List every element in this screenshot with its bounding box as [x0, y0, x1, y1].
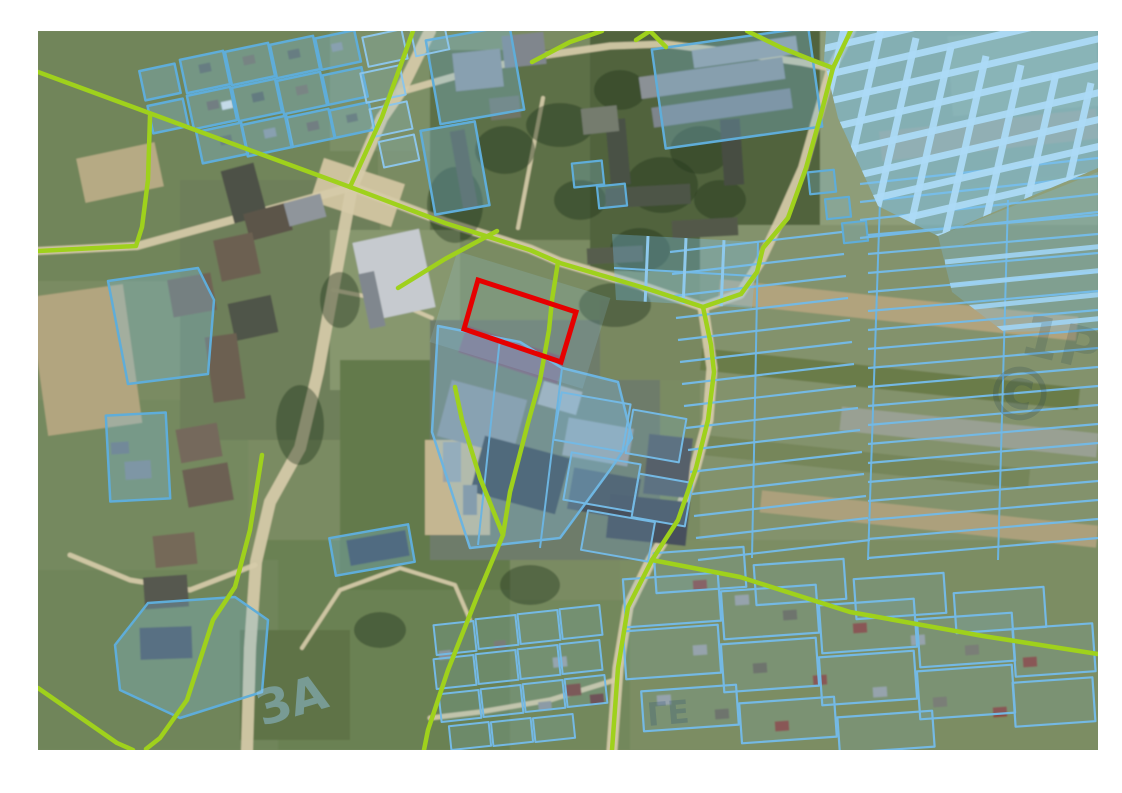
cadastral-parcel[interactable]: [523, 680, 566, 712]
cadastral-parcel[interactable]: [108, 268, 214, 384]
cadastral-parcel[interactable]: [652, 31, 822, 149]
cadastral-parcel[interactable]: [139, 64, 180, 101]
cadastral-parcel[interactable]: [449, 722, 491, 750]
cadastral-parcel[interactable]: [180, 51, 230, 93]
cadastral-parcel[interactable]: [825, 197, 851, 219]
tree-canopy: [694, 180, 746, 220]
tree-canopy: [276, 385, 324, 465]
cadastral-parcel[interactable]: [954, 587, 1047, 633]
building: [213, 232, 261, 281]
building: [175, 423, 222, 464]
cadastral-parcel[interactable]: [533, 714, 575, 742]
cadastral-parcel[interactable]: [626, 410, 687, 463]
cadastral-parcel[interactable]: [225, 43, 275, 85]
cadastral-parcel[interactable]: [481, 685, 524, 717]
cadastral-parcel[interactable]: [232, 79, 282, 121]
cadastral-parcel[interactable]: [315, 31, 361, 70]
tree-canopy: [594, 70, 646, 110]
building: [672, 217, 739, 238]
cadastral-parcel[interactable]: [842, 221, 868, 243]
cadastral-parcel[interactable]: [518, 610, 561, 644]
cadastral-parcel[interactable]: [854, 573, 947, 619]
cadastral-parcel[interactable]: [808, 170, 836, 195]
cadastral-parcel[interactable]: [623, 625, 721, 680]
cadastral-parcel[interactable]: [270, 36, 320, 78]
building: [152, 532, 197, 568]
tree-canopy: [500, 565, 560, 605]
cadastral-parcel[interactable]: [572, 161, 604, 188]
cadastral-parcel[interactable]: [491, 718, 533, 746]
cadastral-parcel[interactable]: [439, 690, 482, 722]
cadastral-parcel[interactable]: [277, 72, 327, 114]
cadastral-parcel[interactable]: [1013, 677, 1096, 726]
cadastral-parcel[interactable]: [518, 645, 561, 679]
tree-canopy: [320, 272, 360, 328]
building: [182, 462, 234, 507]
cadastral-parcel[interactable]: [106, 413, 170, 502]
cadastral-parcel[interactable]: [560, 605, 603, 639]
cadastral-parcel[interactable]: [187, 87, 237, 129]
imagery-watermark: ГЕ: [645, 692, 690, 734]
cadastral-parcel[interactable]: [560, 640, 603, 674]
cadastral-parcel[interactable]: [597, 184, 627, 209]
building: [581, 105, 620, 135]
cadastral-parcel[interactable]: [837, 711, 934, 750]
cadastral-map[interactable]: ©1РЗАГЕ: [38, 31, 1098, 750]
map-viewport[interactable]: ©1РЗАГЕ: [38, 31, 1098, 750]
cadastral-parcel[interactable]: [739, 697, 837, 744]
screenshot-root: ©1РЗАГЕ: [0, 0, 1122, 793]
cadastral-parcel[interactable]: [565, 675, 608, 707]
tree-canopy: [354, 612, 406, 648]
cadastral-parcel[interactable]: [434, 655, 477, 689]
cadastral-parcel[interactable]: [476, 650, 519, 684]
tree-canopy: [475, 126, 535, 174]
cadastral-parcel[interactable]: [476, 615, 519, 649]
